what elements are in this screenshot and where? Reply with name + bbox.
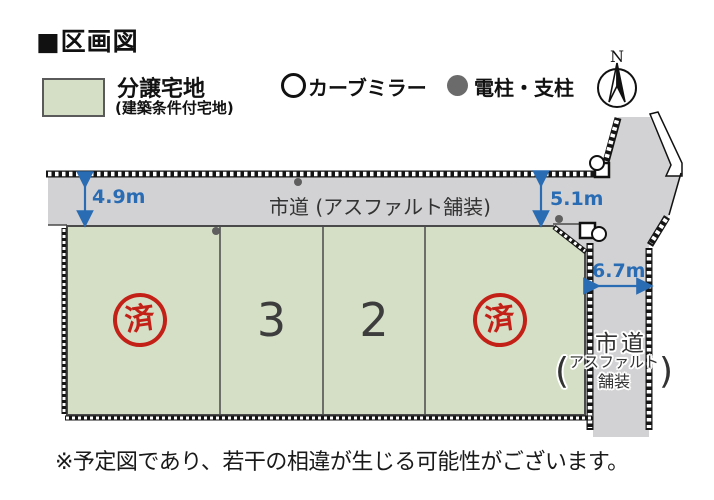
paren-open: ( bbox=[555, 354, 569, 390]
legend-lot-swatch bbox=[42, 78, 105, 117]
utility-pole-icon bbox=[447, 75, 468, 96]
utility-pole-lot-boundary bbox=[212, 227, 220, 235]
road-right-sublabel: ( アスファルト 舗装 ) bbox=[558, 352, 670, 392]
page-title: ■区画図 bbox=[36, 22, 139, 58]
curve-mirror-north bbox=[590, 156, 604, 170]
paren-close: ) bbox=[659, 354, 673, 390]
road-right-sub-line2: 舗装 bbox=[598, 372, 630, 391]
dimension-label-4-9m: 4.9m bbox=[92, 186, 145, 208]
dimension-label-5-1m: 5.1m bbox=[550, 188, 603, 210]
disclaimer-note: ※予定図であり、若干の相違が生じる可能性がございます。 bbox=[55, 444, 629, 476]
curve-mirror-icon bbox=[281, 73, 306, 98]
compass-icon bbox=[598, 63, 636, 107]
plot-number-2: 2 bbox=[323, 293, 425, 347]
compass-north-label: N bbox=[610, 47, 624, 66]
legend-pole-label: 電柱・支柱 bbox=[474, 72, 574, 101]
road-top-label: 市道 (アスファルト舗装) bbox=[265, 191, 495, 220]
road-right-sub-line1: アスファルト bbox=[569, 353, 659, 371]
legend-mirror-label: カーブミラー bbox=[308, 72, 427, 101]
dimension-label-6-7m: 6.7m bbox=[592, 260, 645, 282]
legend-lot-sublabel: (建築条件付宅地) bbox=[115, 97, 234, 118]
plot-map-page: N ■区画図 分譲宅地 (建築条件付宅地) カーブミラー 電柱・支柱 市道 (ア… bbox=[0, 0, 714, 500]
sold-stamp-west-char: 済 bbox=[123, 303, 157, 337]
sold-stamp-east-char: 済 bbox=[483, 303, 517, 337]
curve-mirror-lot bbox=[592, 227, 606, 241]
plot-number-3: 3 bbox=[220, 293, 323, 347]
utility-pole-road bbox=[294, 178, 302, 186]
utility-pole-corner bbox=[555, 215, 563, 223]
